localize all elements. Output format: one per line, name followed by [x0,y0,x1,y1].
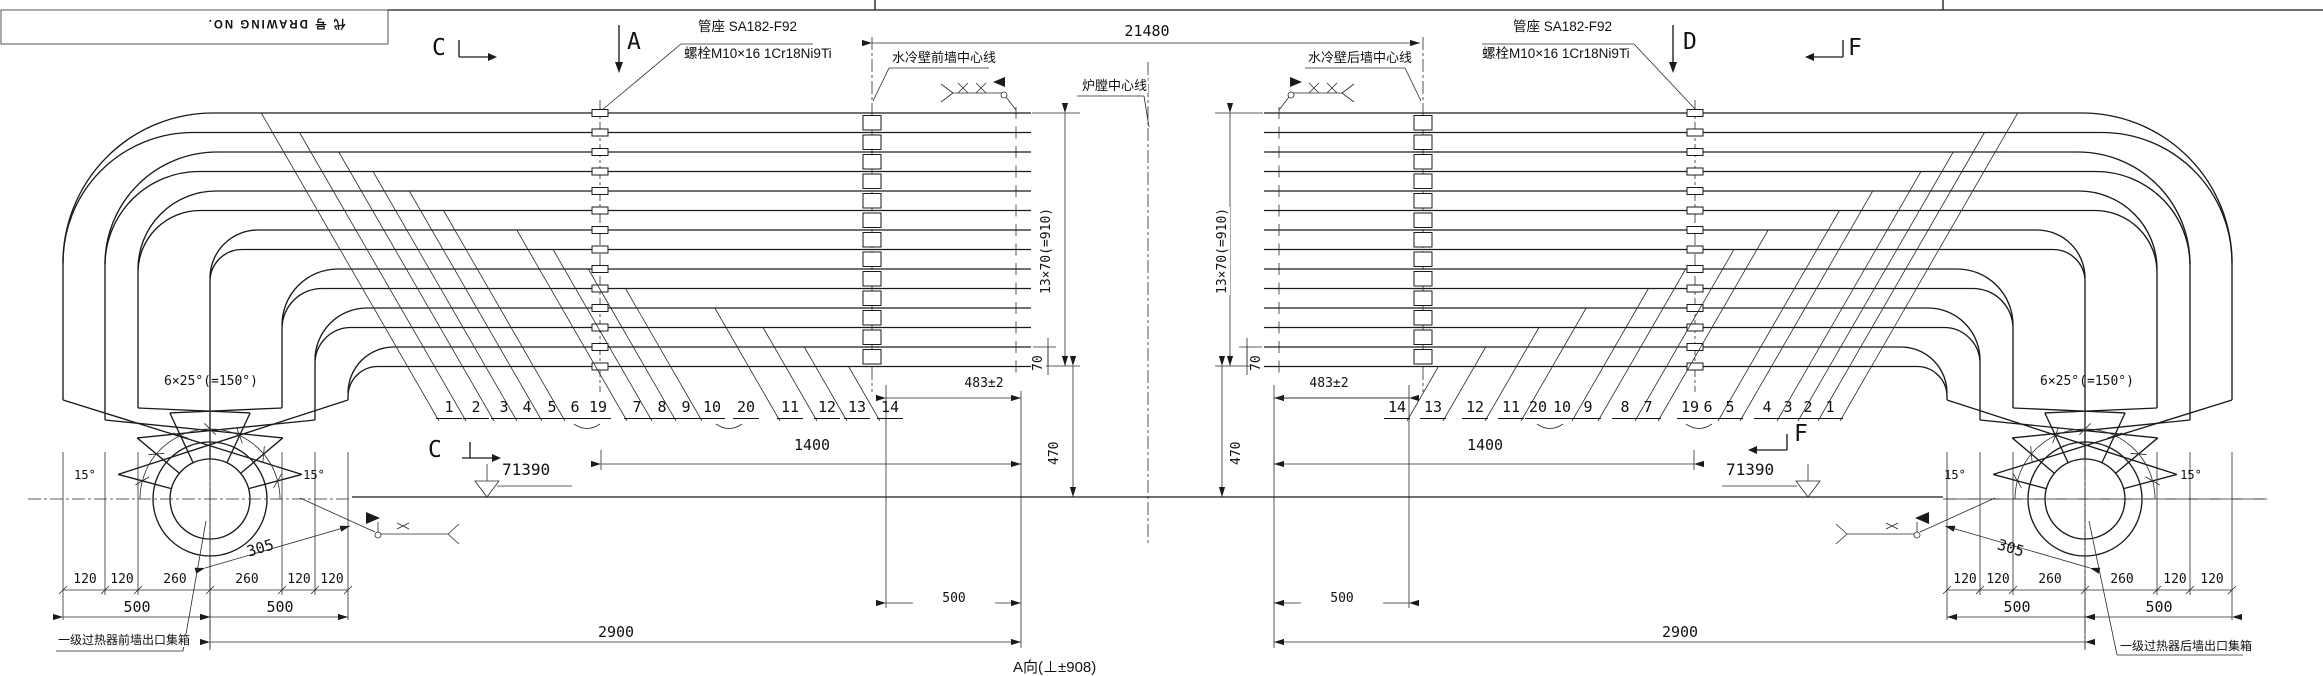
wall-attachment-box [863,350,881,365]
tube-number: 5 [1717,400,1743,419]
pipe-seat-clip [1687,207,1703,214]
pipe-seat-clip [592,324,608,331]
tube-number-leader [1718,211,1839,422]
weld-leader [1920,498,1995,532]
angle-15-arc [2153,481,2155,499]
pipe-seat-spec-left: 管座 SA182-F92 [697,20,798,34]
pipe-seat-clip [592,110,608,117]
tube-number: 7 [1635,400,1661,419]
dim-half-span: 500 [2135,600,2183,616]
dim-radius-line [205,526,350,568]
wall-attachment-box [863,311,881,326]
wall-attachment-box [1414,330,1432,345]
tube-row [1264,172,2190,266]
front-outlet-header-label: 一级过热器前墙出口集箱 [57,634,191,647]
wall-attachment-box [1414,135,1432,150]
wall-attachment-box [863,252,881,267]
pipe-seat-clip [592,305,608,312]
dim-angle-end: 15° [2175,469,2207,482]
dim-elevation-left: 71390 [501,462,551,479]
bolt-spec-left: 螺栓M10×16 1Cr18Ni9Ti [683,47,833,61]
tube-row [105,171,1031,265]
tube-row [1264,230,2085,278]
wall-attachment-box [863,155,881,170]
header-stub [249,474,302,488]
weld-leader [1006,97,1016,110]
weld-flag [993,77,1005,87]
tube-number: 11 [777,400,803,419]
section-c-arrowhead [492,454,501,462]
pair-bracket [574,424,600,429]
tube-number: 20 [1525,400,1551,419]
header-stub [118,474,171,488]
elevation-triangle [475,481,499,497]
dim-overall-span: 21480 [1108,24,1186,40]
weld-fork [1836,524,1847,534]
dim-seat-span-right: 1400 [1449,438,1521,454]
weld-fork [1342,93,1354,102]
tube-fan-connector [1993,400,2232,474]
weld-fork [941,84,953,93]
dim-angle-end: 15° [1939,469,1971,482]
tube-number-leader [409,191,542,421]
pipe-seat-clip [1687,129,1703,136]
wall-attachment-box [863,135,881,150]
pair-bracket [1686,424,1712,429]
tube-row [1264,328,1980,364]
tube-number: 10 [699,400,725,419]
dim-row-gap-left: 70 [1032,354,1046,372]
pipe-seat-clip [592,344,608,351]
dim-seat-span-left: 1400 [776,438,848,454]
dim-angle-fan-right: 6×25°(=150°) [2036,375,2138,389]
rear-wall-centerline-label: 水冷壁后墙中心线 [1307,51,1413,65]
wall-attachment-box [863,233,881,248]
tube-row [1264,113,2232,263]
tube-number: 12 [1462,400,1488,419]
dim-drop-right: 470 [1230,441,1244,466]
dim-row-pitch-left: 13×70(=910) [1040,207,1054,295]
rear-outlet-header-label: 一级过热器后墙出口集箱 [2119,640,2253,653]
dim-half-span: 500 [256,600,304,616]
wall-attachment-box [863,272,881,287]
tube-number-leader [339,152,494,421]
tube-fan-connector [118,400,348,474]
wall-attachment-box [1414,291,1432,306]
tube-number: 9 [673,400,699,419]
view-d-arrowhead [1669,62,1677,73]
tube-number: 9 [1575,400,1601,419]
tube-number-leader [1635,250,1734,422]
pipe-seat-clip [592,188,608,195]
header-stub [2124,474,2177,488]
pipe-seat-clip [1687,188,1703,195]
tube-row [348,367,1031,397]
wall-attachment-box [1414,116,1432,131]
weld-fork [941,93,953,102]
tube-row [1264,250,2085,282]
tube-number: 14 [877,400,903,419]
wall-attachment-box [1414,252,1432,267]
dim-half-span: 500 [1993,600,2041,616]
tube-row [1264,152,2190,264]
dim-seg-120: 120 [66,573,104,587]
tube-number-leader [261,113,439,421]
pipe-seat-spec-right: 管座 SA182-F92 [1512,20,1613,34]
dim-elevation-right: 71390 [1725,462,1775,479]
callout-leader [602,44,681,110]
dim-seg-120: 120 [1979,573,2017,587]
wall-attachment-box [1414,311,1432,326]
wall-attachment-box [863,291,881,306]
tube-row [348,347,1031,393]
angle-15-arc [140,481,142,499]
pipe-seat-clip [1687,266,1703,273]
tube-row [1264,211,2157,273]
angle-15-arc [2015,481,2017,499]
tube-number-leader [517,230,627,421]
dim-angle-end: 15° [69,469,101,482]
drawing-sheet: 代 号 DRAWING NO. C A D F C F A向(⊥±908) 管座… [0,0,2323,676]
wall-attachment-box [1414,194,1432,209]
dim-seg-260: 260 [2094,573,2150,587]
tube-number-leader [1598,269,1686,421]
tube-number: 1 [436,400,462,419]
section-marker-c-bottom: C [428,438,442,462]
pipe-seat-clip [592,149,608,156]
tube-fan-connector [2012,420,2190,438]
dim-header-span: 2900 [570,625,662,641]
callout-leader [873,68,889,101]
pipe-seat-clip [1687,110,1703,117]
pipe-seat-clip [1687,227,1703,234]
tube-number-leader [1777,172,1921,422]
pipe-seat-clip [1687,246,1703,253]
pipe-seat-clip [1687,149,1703,156]
dim-half-span: 500 [113,600,161,616]
tube-number-leader [300,133,466,422]
view-a-arrowhead [615,62,623,73]
tube-number: 7 [624,400,650,419]
dim-half-span: 500 [913,592,995,606]
tube-number-leader [1740,191,1873,421]
wall-attachment-box [1414,174,1432,189]
pipe-seat-clip [592,266,608,273]
furnace-centerline-label: 炉膛中心线 [1081,79,1148,93]
front-wall-centerline-label: 水冷壁前墙中心线 [891,51,997,65]
tube-number: 11 [1498,400,1524,419]
tube-number: 2 [463,400,489,419]
tube-row [138,211,1031,273]
elevation-triangle [1796,481,1820,497]
weld-circle [375,532,381,538]
weld-fork [448,524,459,534]
tube-number: 4 [514,400,540,419]
view-f-arrowhead [1748,446,1757,454]
tube-row [105,152,1031,264]
pipe-seat-clip [1687,168,1703,175]
pipe-seat-clip [592,129,608,136]
title-block-text: 代 号 DRAWING NO. [175,17,377,29]
tube-number: 13 [844,400,870,419]
tube-fan-connector [63,400,302,474]
pipe-seat-clip [592,246,608,253]
callout-leader [2089,521,2117,655]
tube-fan-connector [1947,400,2177,474]
pipe-seat-clip [592,168,608,175]
tube-fan-connector [1980,420,2158,438]
dim-drop-left: 470 [1048,441,1062,466]
pair-bracket [716,424,742,429]
dim-half-span: 500 [1301,592,1383,606]
section-marker-c-top: C [432,36,446,60]
tube-row [315,308,1031,360]
angle-15-arc [278,481,280,499]
section-marker-d: D [1683,30,1697,54]
weld-flag [1290,77,1302,87]
dim-end-offset-right: 483±2 [1288,377,1370,391]
bolt-spec-right: 螺栓M10×16 1Cr18Ni9Ti [1481,47,1631,61]
dim-end-offset-left: 483±2 [943,377,1025,391]
weld-fork [448,534,459,544]
wall-attachment-box [1414,233,1432,248]
wall-attachment-box [1414,213,1432,228]
weld-fork [1342,84,1354,93]
pipe-seat-clip [1687,285,1703,292]
dim-seg-120: 120 [103,573,141,587]
tube-fan-connector [105,420,283,438]
wall-attachment-box [863,116,881,131]
tube-row [63,113,1031,263]
dim-header-span: 2900 [1634,625,1726,641]
tube-number: 14 [1384,400,1410,419]
tube-number-leader [1840,113,2018,421]
tube-fan-connector [137,420,315,438]
wall-attachment-box [1414,155,1432,170]
tube-number-leader [1658,230,1768,421]
wall-attachment-box [863,174,881,189]
header-stub [1993,474,2046,488]
tube-number-leader [1818,133,1984,422]
wall-attachment-box [863,194,881,209]
wall-attachment-box [863,330,881,345]
tube-number: 10 [1549,400,1575,419]
pair-bracket [1537,424,1563,429]
view-marker-a: A [627,30,641,54]
dim-seg-260: 260 [147,573,203,587]
weld-leader [1279,97,1289,110]
tube-number-leader [1798,152,1953,421]
dim-seg-120: 120 [313,573,351,587]
tube-number: 20 [733,400,759,419]
weld-leader [300,498,375,532]
view-marker-f-top: F [1848,36,1862,60]
tube-number: 8 [649,400,675,419]
weld-fork [1836,534,1847,544]
tube-number: 13 [1420,400,1446,419]
dim-seg-120: 120 [2193,573,2231,587]
view-f-arrowhead [1805,53,1814,61]
dim-row-pitch-right: 13×70(=910) [1216,207,1230,295]
callout-leader [1405,68,1421,101]
tube-number-leader [373,172,517,422]
section-c-arrowhead [488,53,497,61]
pipe-seat-clip [592,227,608,234]
dim-seg-260: 260 [2022,573,2078,587]
dim-seg-120: 120 [2156,573,2194,587]
bottom-view-note: A向(⊥±908) [1012,660,1097,676]
pipe-seat-clip [592,207,608,214]
wall-attachment-box [1414,272,1432,287]
tube-number: 1 [1817,400,1843,419]
dim-seg-260: 260 [219,573,275,587]
tube-number: 19 [585,400,611,419]
tube-number-leader [553,250,652,422]
tube-row [210,250,1031,282]
tube-number: 12 [814,400,840,419]
dim-row-gap-right: 70 [1250,354,1264,372]
tube-number-leader [444,211,565,422]
weld-circle [1914,532,1920,538]
view-marker-f-bottom: F [1794,422,1808,446]
dim-angle-end: 15° [298,469,330,482]
wall-attachment-box [863,213,881,228]
dim-angle-fan-left: 6×25°(=150°) [160,375,262,389]
wall-attachment-box [1414,350,1432,365]
